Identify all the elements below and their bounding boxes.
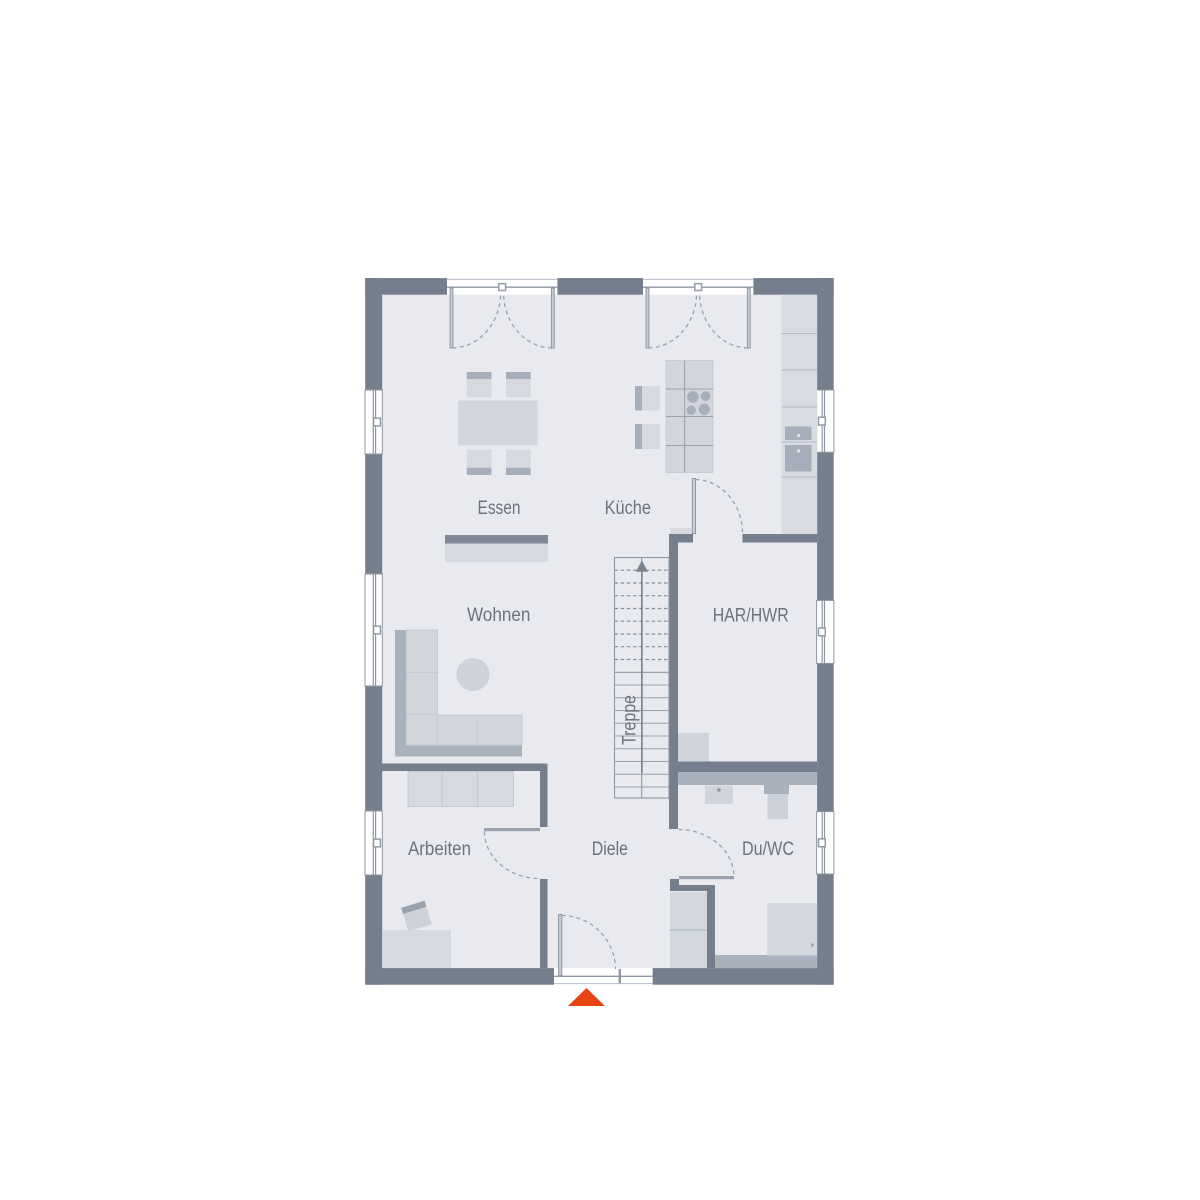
svg-text:Küche: Küche xyxy=(605,497,651,519)
svg-text:Diele: Diele xyxy=(592,838,628,860)
svg-text:Essen: Essen xyxy=(478,497,521,519)
svg-text:Treppe: Treppe xyxy=(619,695,641,745)
svg-text:Wohnen: Wohnen xyxy=(467,604,531,626)
svg-text:HAR/HWR: HAR/HWR xyxy=(713,604,789,626)
svg-text:Arbeiten: Arbeiten xyxy=(408,838,471,860)
svg-text:Du/WC: Du/WC xyxy=(742,838,794,860)
